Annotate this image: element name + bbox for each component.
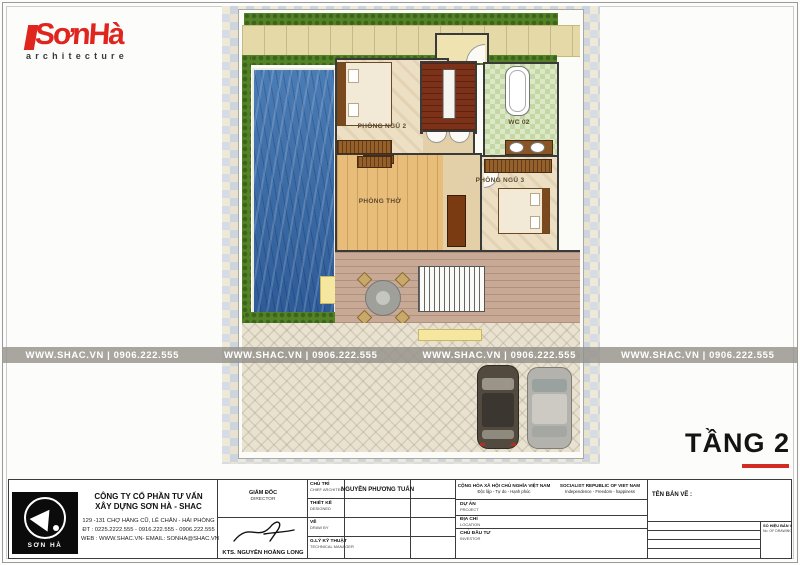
republic-en: SOCIALIST REPUBLIC OF VIET NAM [552, 483, 648, 489]
bathtub-icon [505, 66, 530, 116]
staircase-core [442, 69, 455, 119]
bathtub-basin [509, 70, 526, 112]
role-row: G.LÝ KỸ THUẬT TECHNICAL MANAGER [308, 537, 456, 558]
car-taillight [511, 443, 516, 446]
role-label-en: TECHNICAL MANAGER [310, 545, 344, 550]
project-row: CHỦ ĐẦU TƯ INVESTOR [456, 529, 648, 558]
wardrobe-bedroom-2 [337, 140, 392, 154]
titleblock-company-cell: SƠN HÀ CÔNG TY CỔ PHẦN TƯ VẤN XÂY DỰNG S… [9, 480, 218, 558]
brand-logo: SơnHà architecture [26, 20, 196, 61]
company-address: 129 -131 CHỢ HÀNG CŨ, LÊ CHÂN - HẢI PHÒN… [81, 517, 216, 526]
garden-table [365, 280, 401, 316]
garden-chair [395, 272, 411, 288]
drawing-number-cell: SỐ HIỆU BẢN VẼ No. OF DRAWING [761, 522, 792, 558]
role-label-cell: THIẾT KẾ DESIGNED [308, 499, 345, 518]
walkway-top [242, 25, 580, 57]
titleblock-drawing-cell: TÊN BẢN VẼ : HẠNG MỤC CATEGORIES GIAI ĐO… [648, 480, 792, 558]
room-label-wc-02: WC 02 [483, 119, 555, 126]
bed-bedroom-2 [337, 62, 392, 126]
role-row: CHỦ TRÌ CHIEF ARCHITECT NGUYỄN PHƯƠNG TU… [308, 480, 456, 499]
director-label-cell: GIÁM ĐỐC DIRECTOR [218, 480, 308, 518]
watermark-text: WWW.SHAC.VN | 0906.222.555 [423, 350, 576, 361]
watermark-text: WWW.SHAC.VN | 0906.222.555 [621, 350, 774, 361]
signature-icon [228, 519, 298, 545]
republic-vi-block: CỘNG HÒA XÃ HỘI CHỦ NGHĨA VIỆT NAM Độc l… [456, 480, 552, 499]
hedge-below-pool [244, 312, 339, 323]
door-arc-hall-right [449, 132, 470, 143]
company-logo-emblem-icon [24, 497, 66, 539]
titleblock-director-cell: GIÁM ĐỐC DIRECTOR KTS. NGUYỄN HOÀNG LONG [218, 480, 308, 558]
car-rear-window [532, 426, 567, 437]
hedge-left [242, 55, 251, 323]
driveway [242, 323, 580, 452]
drawing-title-cell: TÊN BẢN VẼ : [648, 480, 792, 522]
project-row: DỰ ÁN PROJECT [456, 500, 648, 516]
brand-logo-text: SơnHà [34, 20, 124, 50]
room-label-worship: PHÒNG THỜ [335, 198, 425, 205]
titleblock-roles-cell: CHỦ TRÌ CHIEF ARCHITECT NGUYỄN PHƯƠNG TU… [308, 480, 456, 558]
plan-content: PHÒNG NGỦ 2 WC 02 PHÒNG THỜ PHÒNG NGỦ 3 [242, 10, 580, 456]
role-label-en: DRAW BY [310, 526, 344, 531]
bed-headboard [338, 63, 346, 125]
project-row: ĐỊA CHỈ LOCATION [456, 516, 648, 529]
car-taillight [480, 443, 485, 446]
corridor-door-panel [447, 195, 466, 247]
wc-vanity-counter [505, 140, 553, 155]
republic-vi-sub: Độc lập - Tự do - Hạnh phúc [456, 489, 552, 494]
watermark-text: WWW.SHAC.VN | 0906.222.555 [224, 350, 377, 361]
role-value-cell: NGUYỄN PHƯƠNG TUẤN [345, 480, 411, 499]
pool-ladder [320, 276, 336, 304]
bed-headboard [542, 189, 549, 233]
car-suv [477, 365, 519, 449]
role-label-en: DESIGNED [310, 507, 344, 512]
pillow [348, 69, 359, 83]
brand-logo-subtitle: architecture [26, 51, 196, 61]
company-logo: SƠN HÀ [12, 492, 78, 554]
car-rear-window [482, 430, 514, 439]
republic-en-sub: Independence - Freedom - happiness [552, 489, 648, 494]
corridor [443, 153, 482, 254]
role-value-cell [345, 518, 411, 537]
floor-plan: PHÒNG NGỦ 2 WC 02 PHÒNG THỜ PHÒNG NGỦ 3 [222, 6, 600, 464]
republic-en-block: SOCIALIST REPUBLIC OF VIET NAM Independe… [552, 480, 648, 499]
role-label-cell: CHỦ TRÌ CHIEF ARCHITECT [308, 480, 345, 499]
pillow [530, 193, 540, 206]
drawing-sheet: SơnHà architecture [0, 0, 800, 565]
project-label-en: INVESTOR [460, 537, 648, 542]
car-sedan [527, 367, 572, 449]
titleblock-republic-cell: CỘNG HÒA XÃ HỘI CHỦ NGHĨA VIỆT NAM Độc l… [456, 480, 648, 558]
republic-vi: CỘNG HÒA XÃ HỘI CHỦ NGHĨA VIỆT NAM [456, 483, 552, 489]
role-label-cell: G.LÝ KỸ THUẬT TECHNICAL MANAGER [308, 537, 345, 558]
sink-icon [530, 142, 545, 153]
company-phone: ĐT : 0225.2222.555 - 0916.222.555 - 0906… [81, 526, 216, 535]
republic-header: CỘNG HÒA XÃ HỘI CHỦ NGHĨA VIỆT NAM Độc l… [456, 480, 648, 500]
director-name: KTS. NGUYỄN HOÀNG LONG [218, 550, 308, 556]
drawing-meta-row: TỈ LỆ SCALE [648, 540, 761, 549]
garden-steps [418, 266, 485, 312]
sink-icon [509, 142, 524, 153]
terrace-deck [335, 250, 580, 325]
company-web: WEB : WWW.SHAC.VN- EMAIL: SONHA@SHAC.VN [81, 535, 216, 544]
drawing-meta-row: HẠNG MỤC CATEGORIES [648, 522, 761, 531]
director-label-en: DIRECTOR [218, 497, 308, 503]
drawing-meta-rows: HẠNG MỤC CATEGORIES GIAI ĐOẠN THIẾT KẾ D… [648, 522, 761, 558]
floor-title-underline [742, 464, 789, 468]
car-roof [482, 393, 514, 427]
company-name-line2: XÂY DỰNG SƠN HÀ - SHAC [81, 502, 216, 512]
role-row: VẼ DRAW BY [308, 518, 456, 537]
role-row: THIẾT KẾ DESIGNED [308, 499, 456, 518]
watermark-text: WWW.SHAC.VN | 0906.222.555 [26, 350, 179, 361]
car-roof [532, 394, 567, 424]
project-label-en: LOCATION [460, 523, 648, 528]
drawing-title-label: TÊN BẢN VẼ : [652, 492, 692, 498]
car-windshield [532, 379, 567, 392]
hedge-top [244, 13, 558, 25]
company-logo-dot-icon [53, 525, 59, 531]
pillow [530, 216, 540, 229]
role-value-cell [345, 499, 411, 518]
car-windshield [482, 378, 514, 390]
wardrobe-bedroom-3 [484, 159, 552, 173]
bed-bedroom-3 [498, 188, 550, 234]
role-label-cell: VẼ DRAW BY [308, 518, 345, 537]
company-name-line1: CÔNG TY CỔ PHẦN TƯ VẤN [81, 492, 216, 502]
door-arc-hall-left [426, 132, 447, 143]
drawing-meta-row: GIAI ĐOẠN THIẾT KẾ DESIGN PHASE [648, 531, 761, 540]
room-label-bedroom-3: PHÒNG NGỦ 3 [462, 177, 538, 184]
company-logo-caption: SƠN HÀ [28, 542, 63, 549]
role-value: NGUYỄN PHƯƠNG TUẤN [341, 487, 414, 493]
pillow [348, 103, 359, 117]
floor-title: TẦNG 2 [640, 428, 790, 459]
watermark-band: WWW.SHAC.VN | 0906.222.555 WWW.SHAC.VN |… [3, 347, 797, 363]
drawing-number-en: No. OF DRAWING [763, 529, 792, 533]
driveway-marking [418, 329, 482, 341]
garden-table-top [376, 291, 390, 305]
role-value-cell [345, 537, 411, 558]
altar-cabinet [357, 156, 392, 168]
title-block: SƠN HÀ CÔNG TY CỔ PHẦN TƯ VẤN XÂY DỰNG S… [8, 479, 792, 559]
role-label-en: CHIEF ARCHITECT [310, 488, 344, 493]
director-signature-cell: KTS. NGUYỄN HOÀNG LONG [218, 518, 308, 558]
director-label-vi: GIÁM ĐỐC [218, 490, 308, 497]
room-label-bedroom-2: PHÒNG NGỦ 2 [337, 123, 427, 130]
drawing-meta-row: HOÀN THÀNH DATE [648, 549, 761, 558]
staircase [420, 61, 477, 134]
project-label-en: PROJECT [460, 508, 648, 513]
